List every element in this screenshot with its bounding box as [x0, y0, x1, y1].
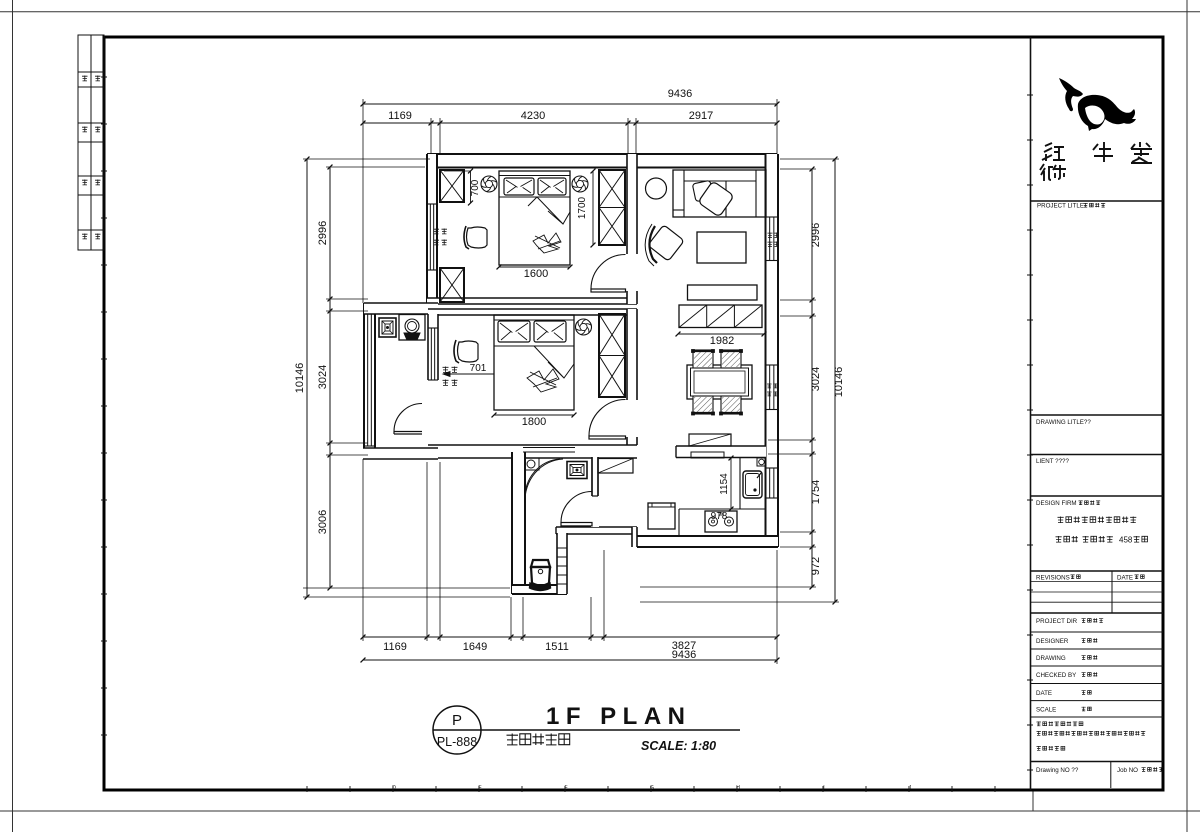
svg-text:I: I — [823, 785, 824, 791]
svg-text:DRAWING: DRAWING — [1036, 655, 1066, 662]
svg-text:DESIGNER: DESIGNER — [1036, 638, 1069, 645]
svg-text:978: 978 — [711, 511, 728, 522]
svg-text:DATE: DATE — [1036, 690, 1052, 697]
svg-text:P: P — [452, 712, 462, 729]
svg-text:2917: 2917 — [689, 110, 713, 122]
svg-text:1800: 1800 — [522, 416, 546, 428]
svg-text:Drawing NO ??: Drawing NO ?? — [1036, 767, 1079, 774]
svg-text:1154: 1154 — [719, 473, 730, 495]
svg-text:3006: 3006 — [317, 510, 329, 534]
svg-text:DATE: DATE — [1117, 575, 1133, 582]
svg-text:10146: 10146 — [833, 367, 845, 398]
svg-text:1649: 1649 — [463, 641, 487, 653]
svg-text:458: 458 — [1119, 536, 1133, 545]
svg-text:PL-888: PL-888 — [437, 735, 477, 749]
svg-text:DRAWING LITLE??: DRAWING LITLE?? — [1036, 419, 1091, 426]
svg-text:2996: 2996 — [810, 223, 822, 247]
svg-text:3024: 3024 — [317, 365, 329, 389]
svg-text:PROJECT DIR: PROJECT DIR — [1036, 618, 1078, 625]
svg-text:D: D — [392, 785, 396, 791]
svg-text:SCALE: SCALE — [1036, 707, 1056, 714]
svg-text:4230: 4230 — [521, 110, 545, 122]
svg-text:1511: 1511 — [545, 641, 569, 653]
svg-text:F: F — [564, 785, 567, 791]
svg-text:1982: 1982 — [710, 335, 734, 347]
svg-text:2996: 2996 — [317, 221, 329, 245]
svg-text:3024: 3024 — [810, 367, 822, 391]
svg-text:LIENT ????: LIENT ???? — [1036, 458, 1069, 465]
svg-text:10146: 10146 — [294, 363, 306, 394]
svg-text:972: 972 — [810, 557, 822, 575]
svg-text:G: G — [650, 785, 654, 791]
svg-text:H: H — [736, 785, 740, 791]
svg-text:CHECKED BY: CHECKED BY — [1036, 672, 1076, 679]
svg-text:PROJECT LITLE: PROJECT LITLE — [1037, 203, 1084, 210]
svg-text:1169: 1169 — [383, 641, 407, 653]
svg-text:SCALE: 1:80: SCALE: 1:80 — [641, 739, 716, 753]
svg-text:701: 701 — [470, 363, 487, 374]
svg-text:1700: 1700 — [577, 196, 588, 219]
svg-text:9436: 9436 — [672, 649, 696, 661]
svg-text:1F PLAN: 1F PLAN — [546, 703, 692, 730]
svg-text:DESIGN FIRM: DESIGN FIRM — [1036, 500, 1077, 507]
svg-text:1169: 1169 — [388, 110, 412, 122]
svg-text:1754: 1754 — [810, 480, 822, 504]
svg-text:9436: 9436 — [668, 88, 692, 100]
svg-text:REVISIONS: REVISIONS — [1036, 575, 1070, 582]
svg-text:700: 700 — [470, 179, 481, 196]
svg-text:1600: 1600 — [524, 268, 548, 280]
svg-text:Job NO: Job NO — [1117, 767, 1138, 774]
